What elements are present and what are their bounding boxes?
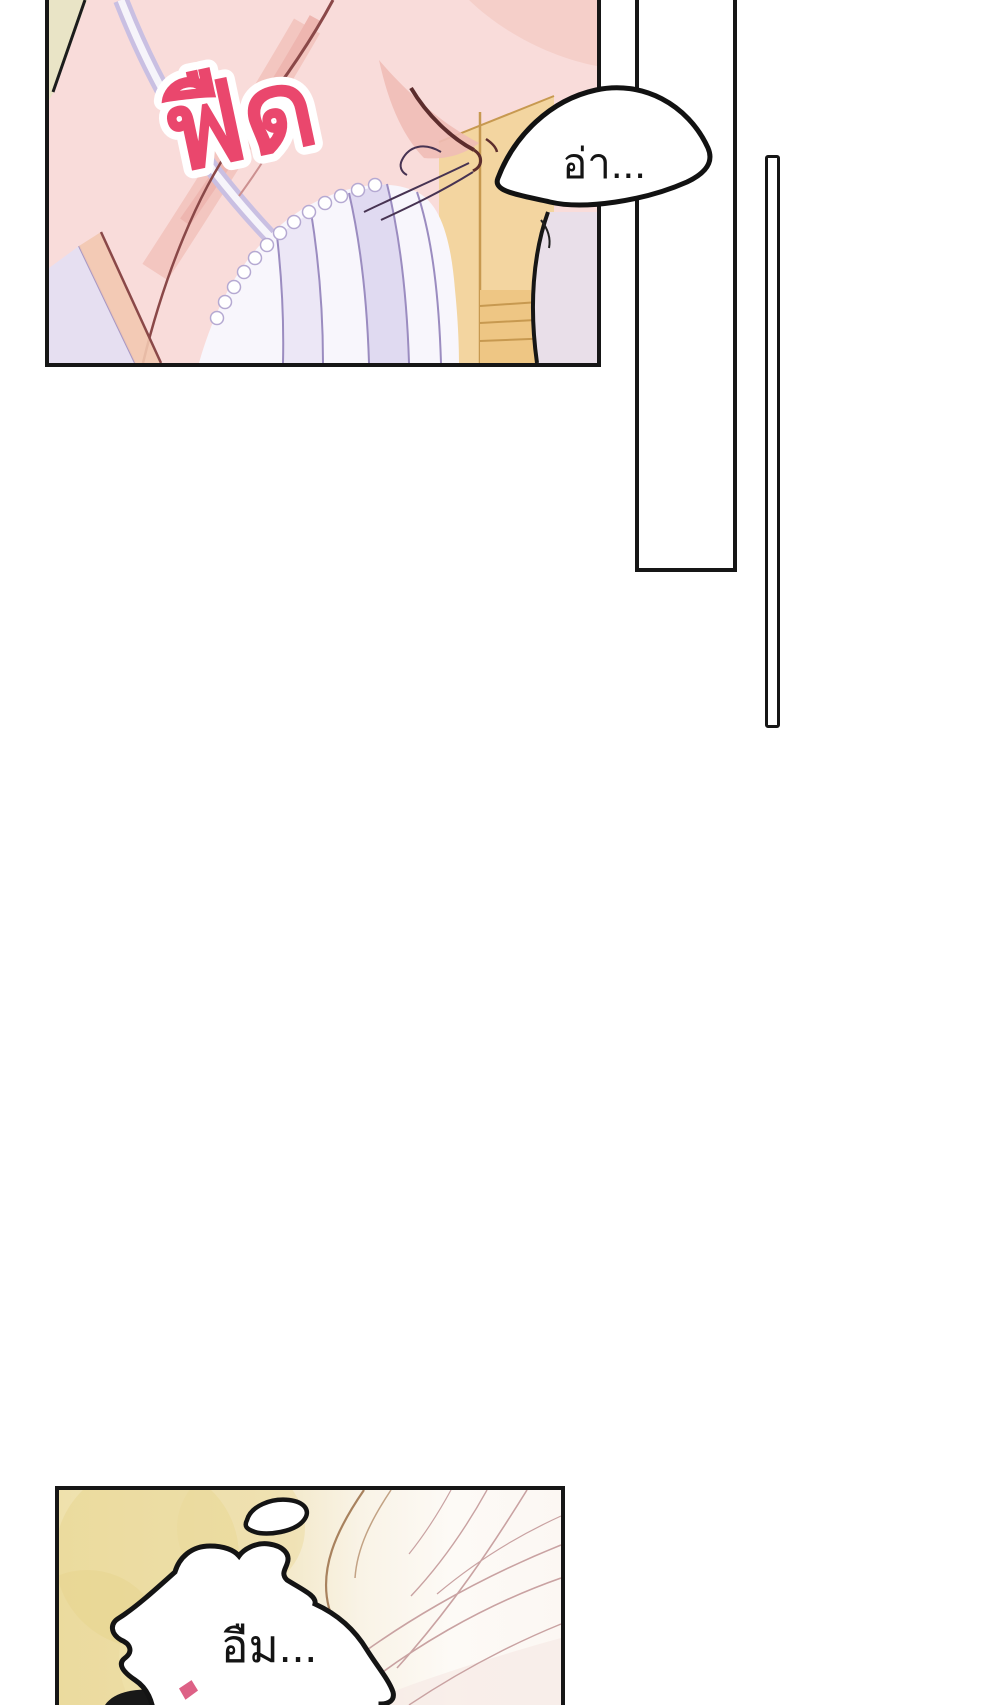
speech-bubble-ah: อ่า... [492, 78, 720, 226]
panel-bottom-art: อืม... [59, 1490, 561, 1705]
speech-bubble-ah-text: อ่า... [562, 140, 646, 187]
speech-bubble-hmm-text: อืม... [221, 1620, 317, 1672]
panel-bottom: อืม... [55, 1486, 565, 1705]
vertical-pole [765, 155, 780, 728]
comic-page: ฟืด อ่า... [0, 0, 1000, 1705]
